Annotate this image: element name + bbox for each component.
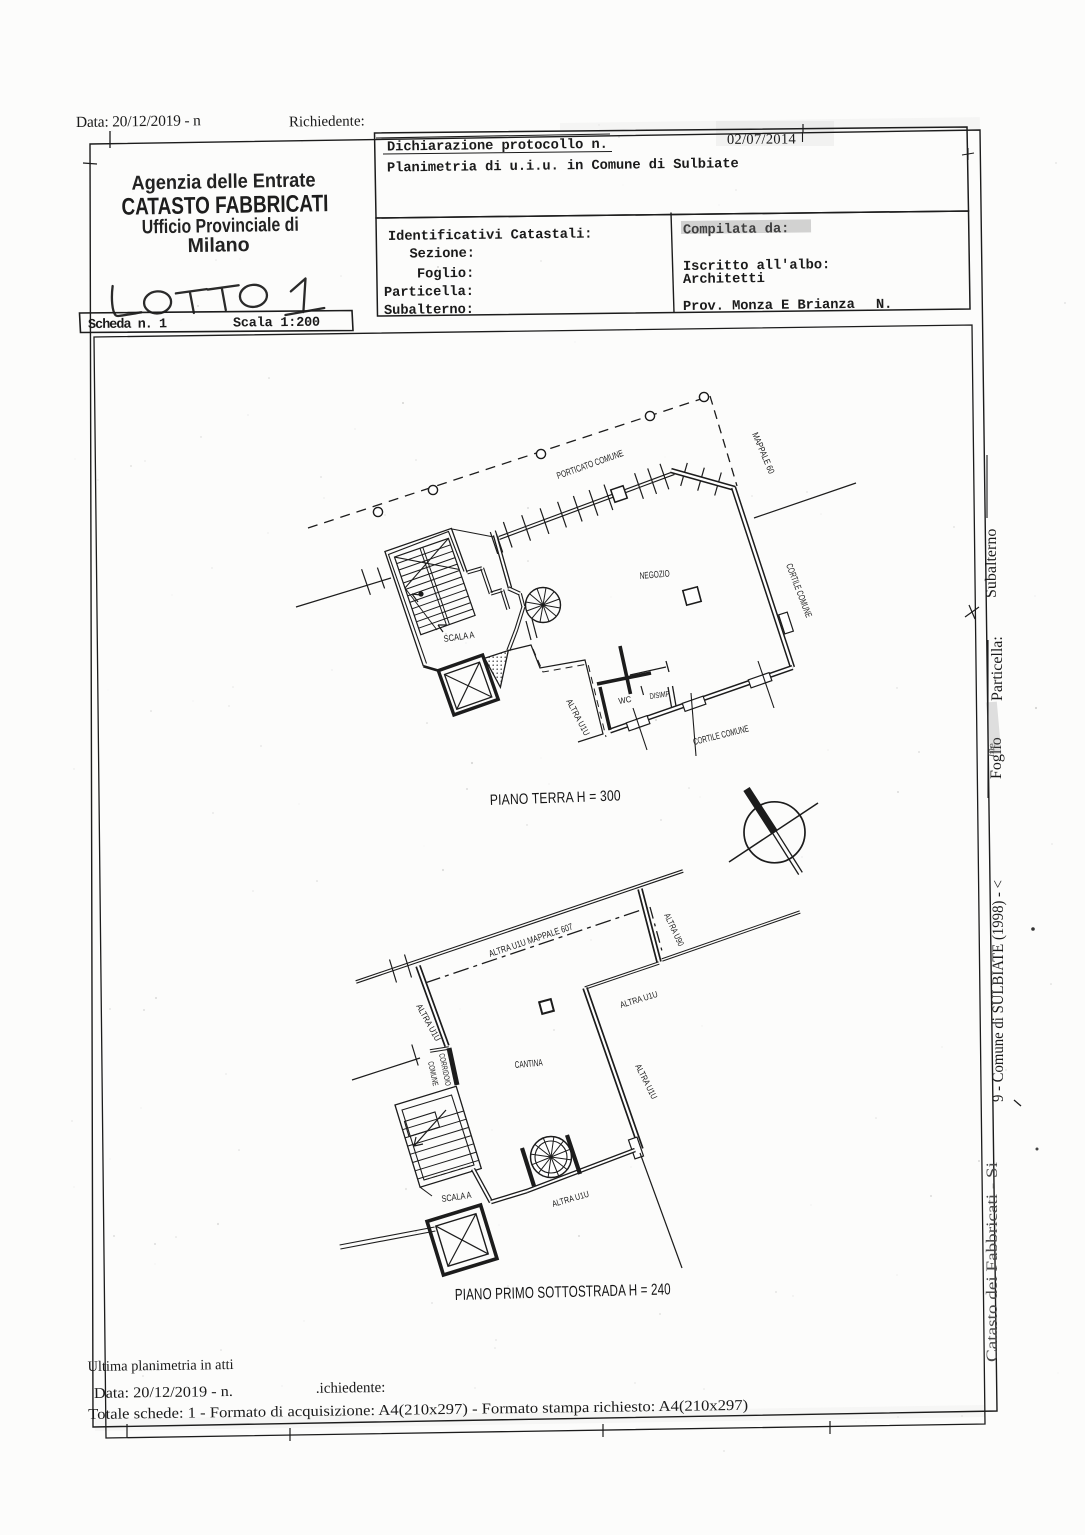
svg-text:Prov. Monza E Brianza: Prov. Monza E Brianza (683, 297, 855, 315)
svg-text:Richiedente:: Richiedente: (289, 113, 365, 130)
svg-text:.ichiedente:: .ichiedente: (316, 1380, 386, 1397)
svg-text:N.: N. (876, 298, 893, 313)
svg-text:Architetti: Architetti (683, 271, 765, 288)
svg-text:Scala 1:200: Scala 1:200 (233, 316, 320, 332)
svg-text:Milano: Milano (187, 234, 249, 257)
svg-text:Data: 20/12/2019 - n.: Data: 20/12/2019 - n. (94, 1384, 233, 1402)
svg-text:Ultima planimetria in atti: Ultima planimetria in atti (87, 1357, 233, 1375)
svg-text:Subalterno: Subalterno (983, 529, 1000, 598)
svg-text:Scheda n. 1: Scheda n. 1 (88, 317, 167, 333)
svg-text:02/07/2014: 02/07/2014 (727, 131, 797, 148)
svg-text:Identificativi Catastali:: Identificativi Catastali: (388, 227, 593, 245)
svg-text:Catasto dei Fabbricati - Si: Catasto dei Fabbricati - Si (984, 1161, 1001, 1362)
svg-text:Particella:: Particella: (989, 636, 1006, 701)
svg-text:Data: 20/12/2019 - n: Data: 20/12/2019 - n (76, 112, 201, 131)
svg-text:Foglio:: Foglio: (417, 266, 474, 283)
svg-text:Sezione:: Sezione: (409, 246, 475, 263)
svg-text:9 - Comune di SULBIATE (1998): 9 - Comune di SULBIATE (1998) - < (990, 880, 1007, 1102)
svg-text:Subalterno:: Subalterno: (384, 302, 474, 319)
svg-text:Particella:: Particella: (384, 284, 474, 301)
